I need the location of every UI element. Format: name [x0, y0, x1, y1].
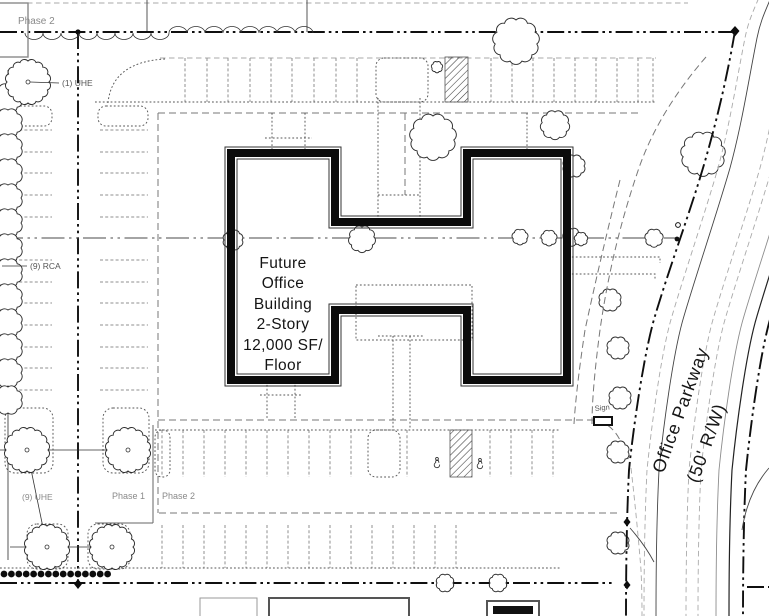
shrub-icon	[599, 289, 621, 311]
shrub-icon	[0, 109, 22, 137]
accessible-parking-icon	[477, 458, 482, 468]
tree-icon	[24, 524, 69, 569]
hedge-shrub-dot	[38, 571, 45, 578]
shrub-icon	[0, 284, 22, 312]
adjacent-structure-fill	[493, 606, 533, 614]
west-landscape-strip	[0, 70, 27, 560]
hedge-shrub-dot	[30, 571, 37, 578]
adjacent-building-outline	[0, 3, 28, 57]
shrub-icon	[0, 309, 22, 337]
planting-label-uhe-bottom: (9) UHE	[22, 492, 53, 502]
building-label-line: Floor	[264, 357, 301, 374]
hedge-shrub-dot	[75, 571, 82, 578]
shrub-icon	[0, 386, 22, 414]
shrub-icon	[0, 159, 22, 187]
accessible-parking-icon	[434, 457, 439, 467]
driveway-return-curve	[630, 528, 654, 562]
shrub-icon	[607, 441, 629, 463]
parking-stalls-top-row	[185, 58, 653, 102]
shrub-icon	[489, 574, 506, 591]
hedge-shrub-dot	[52, 571, 59, 578]
road-curb-line	[716, 0, 769, 616]
shrub-scallop-line	[169, 27, 313, 33]
shrub-icon	[0, 209, 22, 237]
trees	[5, 18, 725, 592]
tree-icon	[89, 524, 134, 569]
road-lane-line	[698, 0, 769, 616]
site-plan-drawing: Future Office Building 2-Story 12,000 SF…	[0, 0, 769, 616]
hedge-shrub-dot	[97, 571, 104, 578]
property-corner-marker	[624, 518, 631, 527]
road-curb-line	[729, 0, 769, 616]
adjacent-structure-outline	[200, 598, 257, 616]
parking-island	[98, 106, 148, 126]
hatched-crosswalk	[445, 57, 468, 102]
property-corner-marker	[624, 581, 631, 590]
southwest-tree-cluster	[0, 427, 151, 577]
office-parkway-road: Office Parkway (50' R/W)	[574, 0, 769, 616]
building-label-line: 12,000 SF/	[243, 337, 323, 354]
tree-icon	[105, 427, 150, 472]
hatched-access-aisle	[450, 430, 472, 477]
road-curb-line	[656, 0, 769, 616]
shrub-icon	[436, 574, 453, 591]
sign-label: Sign	[594, 402, 610, 413]
building-label: Future Office Building 2-Story 12,000 SF…	[243, 255, 323, 374]
hedge-shrub-dot	[82, 571, 89, 578]
phase-label-top: Phase 2	[18, 16, 55, 27]
shrub-icon	[607, 337, 629, 359]
building-label-line: 2-Story	[257, 316, 310, 333]
road-lane-line	[686, 0, 769, 616]
parking-stalls-bottom-row	[162, 525, 456, 568]
planting-label-rca: (9) RCA	[30, 261, 61, 271]
shrub-icon	[607, 532, 629, 554]
shrub-scallop-line	[25, 33, 169, 40]
shrub-icon	[645, 229, 663, 247]
parking-island	[368, 430, 400, 477]
hedge-shrub-dot	[67, 571, 74, 578]
property-corner-marker	[74, 579, 82, 589]
building-label-line: Office	[262, 275, 305, 292]
sign-marker	[594, 417, 612, 425]
shrub-icon	[0, 334, 22, 362]
hedge-shrub-dot	[8, 571, 15, 578]
property-corner-marker	[75, 29, 80, 34]
shrub-icon	[431, 62, 442, 73]
shrub-icon	[0, 359, 22, 387]
shrub-icon	[512, 229, 528, 245]
hedge-shrub-dot	[15, 571, 22, 578]
tree-icon	[540, 111, 569, 140]
road-rw-label: (50' R/W)	[683, 401, 730, 485]
hedge-shrub-dot	[45, 571, 52, 578]
south-structures	[200, 598, 539, 616]
hedge-shrub-dot	[89, 571, 96, 578]
building-label-line: Building	[254, 296, 312, 313]
shrub-icon	[0, 184, 22, 212]
survey-point-marker	[675, 237, 680, 242]
right-of-way-line	[626, 31, 735, 616]
hedge-shrub-dot	[104, 571, 111, 578]
hedge-shrub-dot	[60, 571, 67, 578]
shrub-icon	[0, 134, 22, 162]
hedge-shrub-dot	[23, 571, 30, 578]
north-landscape-edge	[0, 3, 313, 57]
hedge-shrub-dot	[1, 571, 8, 578]
shrub-icon	[541, 230, 557, 246]
hedge-row	[1, 571, 111, 578]
pavement-edge-lines	[0, 0, 688, 58]
survey-point-marker	[676, 223, 681, 228]
tree-icon	[493, 18, 540, 64]
shrub-icon	[609, 387, 631, 409]
phase1-label: Phase 1	[112, 491, 145, 501]
parking-island	[376, 58, 428, 102]
shrub-icon	[0, 259, 22, 287]
adjacent-structure-outline	[269, 598, 409, 616]
sign: Sign	[594, 402, 612, 425]
shrub-icon	[574, 232, 587, 245]
phase2-label: Phase 2	[162, 491, 195, 501]
shrub-icon	[349, 226, 376, 253]
parking-stalls-middle-row	[162, 430, 553, 477]
tree-icon	[4, 427, 49, 472]
building-label-line: Future	[259, 255, 306, 272]
parking-stalls-west-col-b	[100, 130, 148, 390]
planting-label-uhe-top: (1) UHE	[62, 78, 93, 88]
tree-icon	[410, 114, 457, 160]
